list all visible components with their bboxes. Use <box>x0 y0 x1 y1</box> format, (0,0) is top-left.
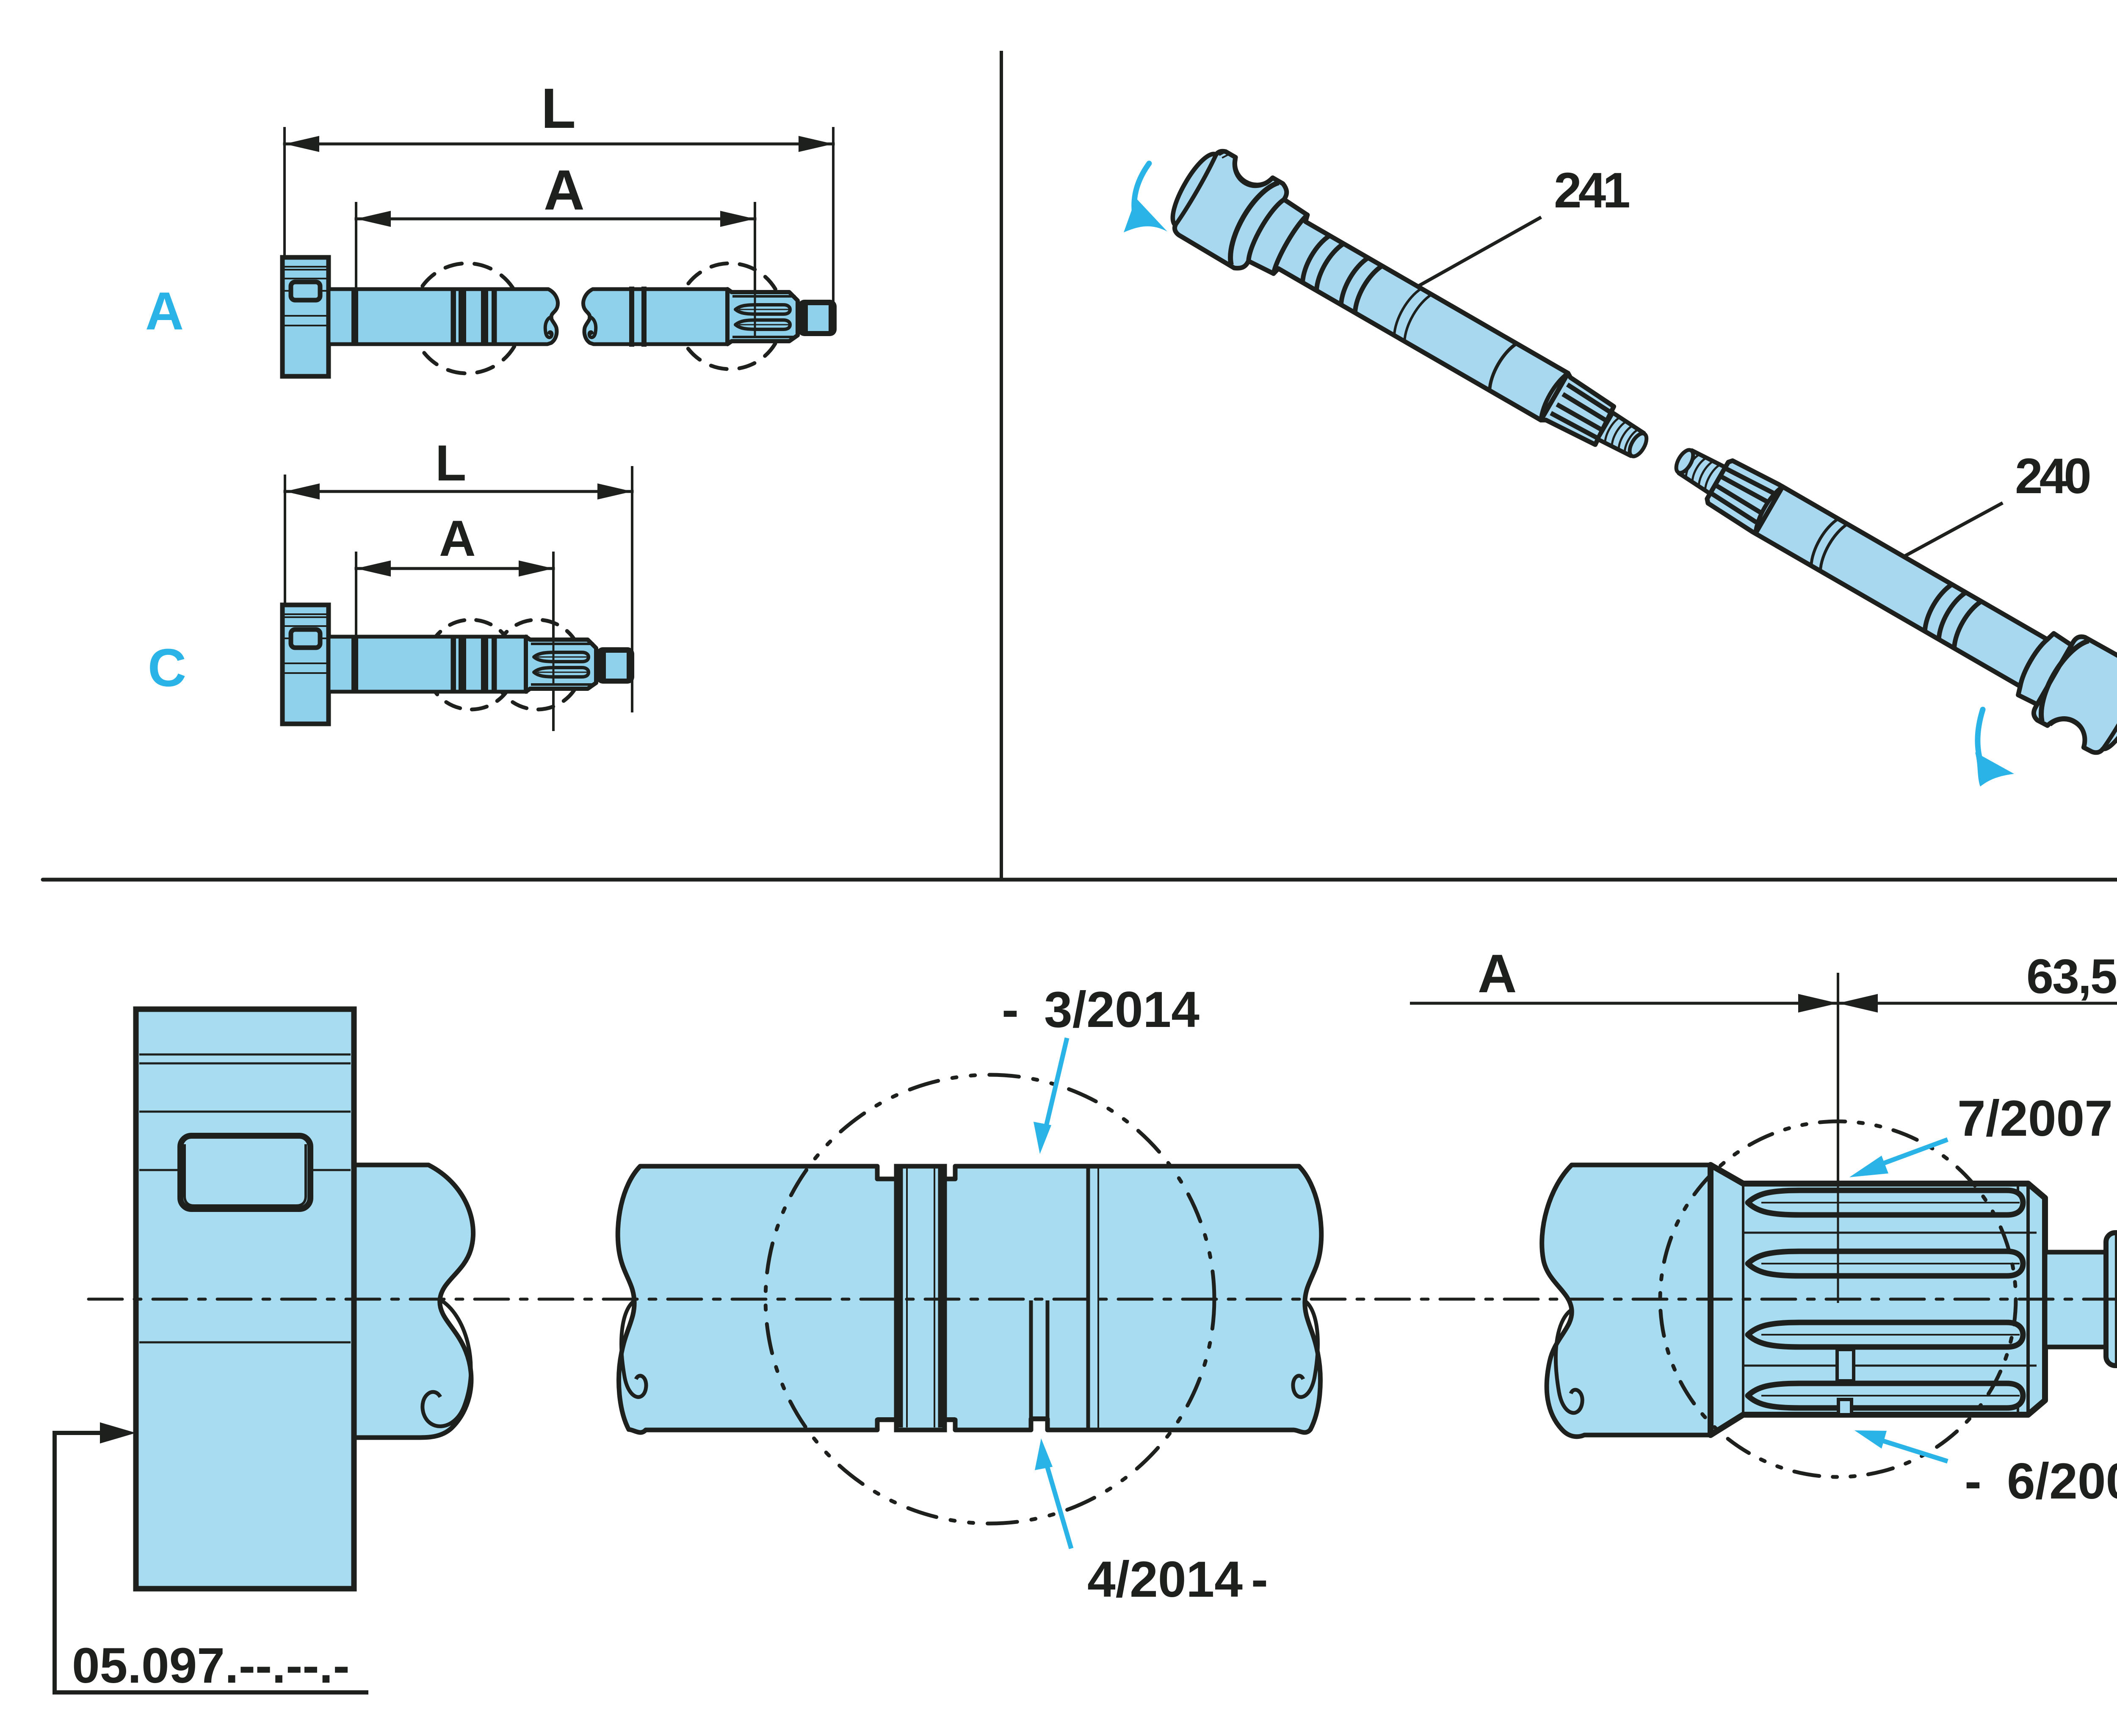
svg-text:A: A <box>439 510 476 567</box>
svg-text:-: - <box>1002 981 1019 1038</box>
svg-text:L: L <box>435 435 466 491</box>
svg-text:4/2014: 4/2014 <box>1087 1551 1243 1608</box>
svg-text:05.097.--.--.-: 05.097.--.--.- <box>72 1638 350 1694</box>
svg-text:A: A <box>1478 944 1517 1004</box>
svg-text:A: A <box>145 281 184 341</box>
svg-text:L: L <box>541 77 576 140</box>
svg-text:240: 240 <box>2015 448 2089 504</box>
svg-text:241: 241 <box>1554 163 1629 218</box>
svg-text:6/2007: 6/2007 <box>2007 1453 2117 1510</box>
svg-text:-: - <box>1251 1551 1268 1608</box>
svg-text:7/2007: 7/2007 <box>1957 1090 2113 1147</box>
svg-text:63,5: 63,5 <box>2026 949 2116 1004</box>
svg-text:C: C <box>148 638 186 698</box>
svg-text:3/2014: 3/2014 <box>1044 981 1199 1038</box>
svg-text:-: - <box>1965 1453 1982 1510</box>
svg-text:A: A <box>544 159 585 222</box>
